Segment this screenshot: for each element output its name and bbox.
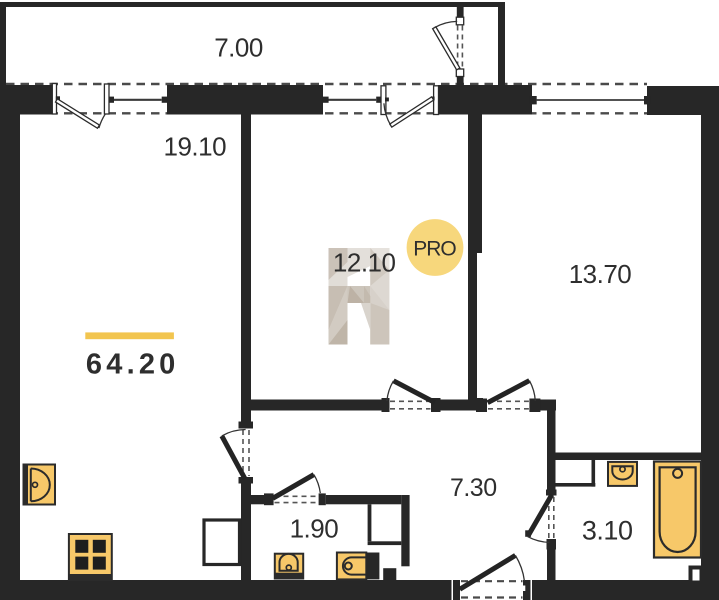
svg-text:64.20: 64.20: [86, 349, 180, 381]
svg-text:7.00: 7.00: [214, 33, 263, 63]
svg-text:7.30: 7.30: [450, 474, 497, 502]
svg-text:19.10: 19.10: [164, 132, 227, 162]
svg-text:PRO: PRO: [413, 238, 456, 261]
svg-text:1.90: 1.90: [290, 514, 339, 544]
svg-text:12.10: 12.10: [333, 248, 396, 278]
svg-text:3.10: 3.10: [582, 516, 633, 546]
svg-text:13.70: 13.70: [569, 259, 632, 289]
